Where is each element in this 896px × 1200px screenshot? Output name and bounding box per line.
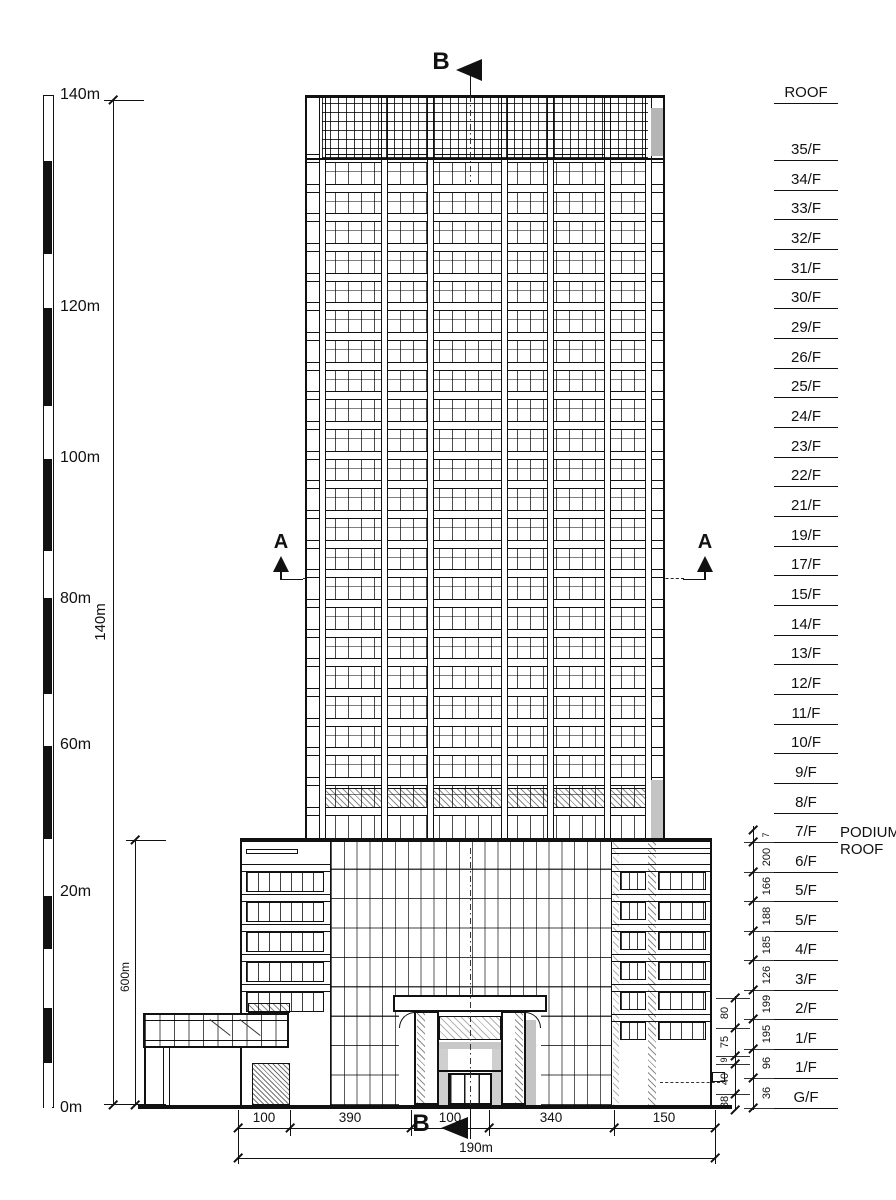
left-wing-shutter-door	[252, 1063, 290, 1105]
canopy-post	[163, 1048, 170, 1105]
tower-window-transom	[322, 230, 648, 231]
podium-left-wing	[242, 841, 330, 1105]
tower-bay-column	[319, 98, 326, 839]
floor-label: 10/F	[772, 734, 840, 752]
floor-label-line	[774, 160, 838, 161]
podium-roof-note-line2: ROOF	[840, 841, 883, 858]
podium-roof-slab-line	[240, 838, 712, 842]
tower-bay-column	[381, 98, 388, 839]
scale-bar-segment	[44, 1008, 52, 1063]
right-wing-top-bar	[612, 848, 710, 854]
floor-label-line	[774, 724, 838, 725]
bottom-dim-ext	[411, 1110, 412, 1136]
floor-label-line	[774, 249, 838, 250]
floor-label-line	[774, 872, 838, 873]
floor-label-line	[774, 1019, 838, 1020]
podium-roof-note-line1: PODIUM	[840, 824, 896, 841]
floor-label-line	[774, 842, 838, 843]
scale-bar-segment	[44, 161, 52, 254]
floor-label: 8/F	[772, 794, 840, 812]
floor-label: 1/F	[772, 1059, 840, 1077]
right-wing-window	[620, 962, 646, 980]
floor-label-line	[774, 901, 838, 902]
scale-bar	[43, 95, 54, 1108]
floor-label: 24/F	[772, 408, 840, 426]
floor-label-line	[774, 486, 838, 487]
podium-edge-left	[240, 838, 242, 1105]
right-wing-window	[658, 932, 706, 950]
scale-label: 0m	[60, 1099, 130, 1117]
tower-window-transom	[322, 319, 648, 320]
floor-label-line	[774, 813, 838, 814]
floor-label: 33/F	[772, 200, 840, 218]
dim-value: 195	[761, 1019, 773, 1049]
dim-value: 166	[761, 871, 773, 901]
floor-label: 7/F	[772, 823, 840, 841]
tower-window-transom	[322, 468, 648, 469]
floor-label: 9/F	[772, 764, 840, 782]
entrance-column-hatch	[515, 1013, 523, 1103]
section-line-b	[470, 96, 471, 182]
right-wing-window	[620, 932, 646, 950]
tower-window-transom	[322, 171, 648, 172]
tower-window-transom	[322, 616, 648, 617]
floor-label-line	[774, 546, 838, 547]
section-line-b-pole	[470, 70, 471, 96]
podium-right-wing	[612, 841, 710, 1105]
floor-label: 25/F	[772, 378, 840, 396]
floor-label: 26/F	[772, 349, 840, 367]
floor-label: 14/F	[772, 616, 840, 634]
bottom-dim-line	[238, 1128, 715, 1129]
tower-louvre-band	[322, 788, 648, 808]
floor-label-line	[774, 783, 838, 784]
scale-bar-segment	[44, 96, 52, 161]
tower-bay-column	[604, 98, 611, 839]
scale-label: 120m	[60, 298, 130, 316]
left-wing-band	[242, 864, 330, 872]
left-wing-window	[246, 962, 324, 982]
left-wing-top-bar	[246, 849, 298, 854]
scale-bar-segment	[44, 406, 52, 459]
podium-roof-note: PODIUM ROOF	[840, 824, 896, 858]
right-wing-window	[658, 1022, 706, 1040]
bottom-total-dim-value: 190m	[446, 1140, 506, 1156]
tower-window-transom	[322, 260, 648, 261]
floor-label: 17/F	[772, 556, 840, 574]
floor-label: 13/F	[772, 645, 840, 663]
floor-label: 11/F	[772, 705, 840, 723]
scale-bar-segment	[44, 551, 52, 598]
scale-bar-segment	[44, 1063, 52, 1109]
floor-label: 5/F	[772, 882, 840, 900]
right-wing-band	[612, 894, 710, 902]
floor-label-line	[774, 338, 838, 339]
floor-label-line	[774, 308, 838, 309]
floor-label-line	[774, 664, 838, 665]
scale-bar-segment	[44, 598, 52, 694]
tower-window-transom	[322, 586, 648, 587]
scale-bar-segment	[44, 949, 52, 1008]
floor-label-line	[774, 694, 838, 695]
right-wing-window	[658, 992, 706, 1010]
tower-window-transom	[322, 675, 648, 676]
tower-window-transom	[322, 646, 648, 647]
left-wing-window	[246, 932, 324, 952]
floor-label: 15/F	[772, 586, 840, 604]
floor-label-line	[774, 368, 838, 369]
bottom-dim-value: 340	[521, 1110, 581, 1126]
entrance-shadow-right	[526, 1020, 536, 1105]
right-wing-band	[612, 924, 710, 932]
floor-label: 29/F	[772, 319, 840, 337]
tower-crown-baseline	[305, 158, 665, 160]
tower-window-transom	[322, 527, 648, 528]
bottom-dim-value: 100	[234, 1110, 294, 1126]
floor-label: 34/F	[772, 171, 840, 189]
dim-ext-line	[744, 1108, 774, 1109]
floor-label-line	[774, 219, 838, 220]
section-marker-a-right-label: A	[688, 531, 722, 553]
tower-bay-column	[427, 98, 434, 839]
tower-roof-line	[305, 95, 665, 98]
right-wing-window	[620, 872, 646, 890]
left-wing-window	[246, 902, 324, 922]
floor-label: 31/F	[772, 260, 840, 278]
section-marker-b-top-label: B	[428, 48, 454, 76]
floor-label: 30/F	[772, 289, 840, 307]
floor-label: 6/F	[772, 853, 840, 871]
right-wing-window	[658, 962, 706, 980]
floor-label-line	[774, 753, 838, 754]
bottom-dim-ext	[489, 1110, 490, 1136]
left-wing-window	[246, 872, 324, 892]
floor-label-line	[774, 931, 838, 932]
left-wing-louvre	[248, 1003, 290, 1013]
scale-bar-segment	[44, 896, 52, 949]
tower-window-transom	[322, 408, 648, 409]
floor-label: 32/F	[772, 230, 840, 248]
right-wing-window	[658, 872, 706, 890]
bottom-dim-value: 100	[420, 1110, 480, 1126]
right-wing-pier	[648, 841, 656, 1105]
left-wing-band	[242, 984, 330, 992]
floor-label: 4/F	[772, 941, 840, 959]
entrance-column-hatch	[417, 1013, 425, 1103]
left-wing-band	[242, 924, 330, 932]
canopy	[143, 1013, 289, 1048]
floor-label-line	[774, 457, 838, 458]
floor-label-line	[774, 279, 838, 280]
floor-label-line	[774, 1108, 838, 1109]
tower-window-transom	[322, 497, 648, 498]
floor-label-line	[774, 103, 838, 104]
height-dim-line	[113, 100, 114, 1105]
scale-bar-segment	[44, 308, 52, 406]
right-wing-band	[612, 954, 710, 962]
scale-label: 20m	[60, 883, 130, 901]
floor-label-line	[774, 1078, 838, 1079]
height-dim-line	[135, 840, 136, 1105]
dim-value: 185	[761, 930, 773, 960]
left-wing-band	[242, 954, 330, 962]
floor-label: 1/F	[772, 1030, 840, 1048]
left-wing-band	[242, 894, 330, 902]
elevation-drawing-canvas: B B A A PODIUM ROOF 140m120m100m80m60m20…	[0, 0, 896, 1200]
floor-label: 5/F	[772, 912, 840, 930]
tower-window-transom	[322, 201, 648, 202]
ground-line	[138, 1105, 732, 1109]
floor-label-line	[774, 960, 838, 961]
tower-window-transom	[322, 290, 648, 291]
tower-window-transom	[322, 349, 648, 350]
right-wing-window	[620, 992, 646, 1010]
floor-label-line	[774, 990, 838, 991]
scale-label: 60m	[60, 736, 130, 754]
tower-window-transom	[322, 764, 648, 765]
floor-label-line	[774, 605, 838, 606]
tower-facade	[305, 95, 665, 838]
floor-label: 12/F	[772, 675, 840, 693]
floor-label: 2/F	[772, 1000, 840, 1018]
right-wing-window	[620, 1022, 646, 1040]
floor-label-line	[774, 397, 838, 398]
tower-window-mullions	[322, 160, 648, 838]
floor-label: 21/F	[772, 497, 840, 515]
scale-bar-segment	[44, 839, 52, 896]
section-line-b	[470, 848, 471, 1105]
floor-label: 22/F	[772, 467, 840, 485]
floor-label-line	[774, 190, 838, 191]
floor-label-line	[774, 516, 838, 517]
floor-label-line	[774, 635, 838, 636]
tower-window-transom	[322, 557, 648, 558]
tower-window-transom	[322, 794, 648, 795]
dim-value: 38	[719, 1087, 731, 1117]
scale-label: 140m	[60, 86, 130, 104]
scale-bar-segment	[44, 746, 52, 839]
scale-bar-segment	[44, 694, 52, 746]
bottom-dim-value: 390	[320, 1110, 380, 1126]
tower-window-transom	[322, 379, 648, 380]
tower-bay-column	[547, 98, 554, 839]
right-wing-band	[612, 1014, 710, 1022]
floor-label: 19/F	[772, 527, 840, 545]
entrance-side-shade	[492, 1049, 501, 1105]
dim-value: 199	[761, 989, 773, 1019]
scale-bar-segment	[44, 459, 52, 551]
floor-label: 3/F	[772, 971, 840, 989]
floor-label-line	[774, 427, 838, 428]
floor-label-line	[774, 575, 838, 576]
height-dim-label: 600m	[118, 951, 134, 1003]
canopy-glazing-grid	[145, 1015, 287, 1046]
entrance-side-shade	[439, 1049, 448, 1105]
podium-edge-right	[710, 838, 712, 1105]
right-wing-window	[620, 902, 646, 920]
floor-label: ROOF	[772, 84, 840, 102]
floor-label: G/F	[772, 1089, 840, 1107]
tower-window-transom	[322, 735, 648, 736]
right-wing-pier	[613, 841, 619, 1105]
scale-bar-segment	[44, 254, 52, 308]
dim-value: 126	[761, 960, 773, 990]
canopy-end-post	[144, 1048, 146, 1105]
dim-value: 80	[719, 998, 731, 1028]
tower-edge-left	[305, 95, 307, 838]
dim-value: 36	[761, 1078, 773, 1108]
floor-label-line	[774, 1049, 838, 1050]
scale-label: 100m	[60, 449, 130, 467]
floor-label: 23/F	[772, 438, 840, 456]
tower-window-transom	[322, 438, 648, 439]
right-wing-band	[612, 984, 710, 992]
tower-crown-grid	[322, 98, 648, 158]
dim-value: 200	[761, 842, 773, 872]
height-dim-label: 140m	[92, 596, 108, 648]
right-wing-window	[658, 902, 706, 920]
dim-value: 96	[761, 1048, 773, 1078]
floor-label: 35/F	[772, 141, 840, 159]
tower-bay-column	[501, 98, 508, 839]
bottom-dim-ext	[614, 1110, 615, 1136]
section-marker-a-left-label: A	[264, 531, 298, 553]
tower-window-transom	[322, 705, 648, 706]
a-right-connector	[683, 579, 705, 580]
right-wing-band	[612, 864, 710, 872]
dim-value: 188	[761, 901, 773, 931]
tower-bay-column	[645, 98, 652, 839]
bottom-dim-value: 150	[634, 1110, 694, 1126]
bottom-total-dim-line	[238, 1158, 715, 1159]
tower-edge-right	[663, 95, 665, 838]
a-left-connector	[281, 579, 303, 580]
